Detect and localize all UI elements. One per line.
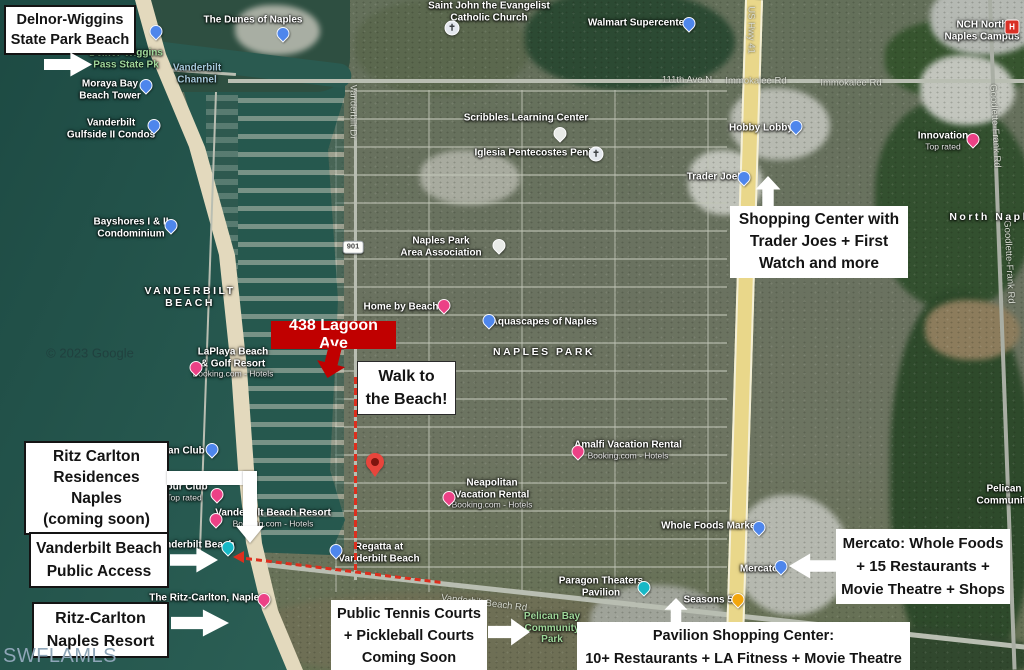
- callout-walk-to-beach: Walk to the Beach!: [357, 361, 456, 415]
- callout-line: Ritz-Carlton: [36, 607, 165, 630]
- callout-line: the Beach!: [360, 388, 453, 411]
- callout-delnor-wiggins: Delnor-Wiggins State Park Beach: [4, 5, 136, 55]
- map-label-goodlette-frank-rd: Goodlette-Frank Rd: [1000, 220, 1015, 304]
- callout-line: Trader Joes + First: [732, 231, 906, 253]
- callout-line: Coming Soon: [333, 647, 485, 669]
- map-label-saint-john-the-evangelist: Saint John the EvangelistCatholic Church: [428, 1, 550, 24]
- map-pin-blue-icon: [274, 24, 292, 42]
- map-label-vanderbilt-dr: Vanderbilt Dr: [347, 85, 358, 140]
- map-label-walmart-supercenter: Walmart Supercenter: [588, 17, 688, 29]
- map-label-home-by-beach: Home by Beach: [363, 301, 438, 313]
- callout-line: Shopping Center with: [732, 209, 906, 231]
- map-label-north-naples: North Naples: [949, 211, 1024, 223]
- callout-tennis-courts: Public Tennis Courts + Pickleball Courts…: [331, 600, 487, 670]
- callout-line: 10+ Restaurants + LA Fitness + Movie The…: [579, 648, 908, 670]
- map-label-iglesia-pentecostes-peniel: Iglesia Pentecostes Peniel: [474, 147, 599, 159]
- route-arrowhead-icon: [233, 551, 244, 563]
- map-label-aquascapes-of-naples: Aquascapes of Naples: [491, 316, 598, 328]
- listing-map-image: The Dunes of NaplesSaint John the Evange…: [0, 0, 1024, 670]
- map-label-vanderbilt: VANDERBILTBEACH: [144, 285, 235, 309]
- map-pin-pink-icon: [208, 485, 226, 503]
- callout-mercato: Mercato: Whole Foods + 15 Restaurants + …: [836, 529, 1010, 604]
- callout-438-lagoon-ave: 438 Lagoon Ave: [271, 321, 396, 349]
- callout-line: Residences Naples: [28, 467, 165, 509]
- callout-line: Walk to: [360, 365, 453, 388]
- map-label-pelican: PelicanCommunity: [977, 484, 1024, 507]
- map-pin-orange-icon: [729, 590, 747, 608]
- callout-line: Delnor-Wiggins: [8, 10, 132, 30]
- map-pin-white-icon: [551, 124, 569, 142]
- map-label-goodlette-frank-rd: Goodlette-Frank Rd: [986, 84, 1001, 168]
- map-pin-white-icon: [490, 236, 508, 254]
- map-pin-red-h-icon: H: [1005, 20, 1020, 35]
- map-pin-church-icon: ✝: [589, 147, 604, 162]
- map-pin-blue-icon: [147, 22, 165, 40]
- map-label-whole-foods-market: Whole Foods Market: [661, 520, 759, 532]
- ritz-residences-arrowhead-icon: [236, 526, 264, 543]
- map-label-vanderbilt: VanderbiltChannel: [173, 63, 221, 86]
- callout-line: Mercato: Whole Foods: [838, 532, 1008, 555]
- map-label-regatta-at: Regatta atVanderbilt Beach: [338, 542, 419, 565]
- map-label-moraya-bay: Moraya BayBeach Tower: [79, 79, 141, 102]
- map-label-vanderbilt-beach-resort: Vanderbilt Beach ResortBooking.com - Hot…: [215, 507, 331, 528]
- callout-line: + 15 Restaurants +: [838, 555, 1008, 578]
- mls-watermark: SWFLAMLS: [3, 645, 117, 668]
- callout-line: Vanderbilt Beach: [33, 537, 165, 560]
- map-label-bayshores-i-ii: Bayshores I & IICondominium: [93, 217, 168, 240]
- callout-line: Ritz Carlton: [28, 446, 165, 467]
- callout-line: + Pickleball Courts: [333, 625, 485, 647]
- map-label-mercato: Mercato: [740, 563, 778, 575]
- map-label-immokalee-rd: Immokalee Rd: [820, 79, 881, 90]
- map-label-the-dunes-of-naples: The Dunes of Naples: [204, 14, 303, 26]
- map-label-neapolitan: NeapolitanVacation RentalBooking.com - H…: [452, 478, 533, 511]
- callout-line: Watch and more: [732, 253, 906, 275]
- callout-line: State Park Beach: [8, 30, 132, 50]
- map-label-amalfi-vacation-rental: Amalfi Vacation RentalBooking.com - Hote…: [574, 439, 682, 460]
- callout-line: Pavilion Shopping Center:: [579, 625, 908, 648]
- google-watermark: © 2023 Google: [46, 347, 134, 362]
- map-label-naples-park: Naples ParkArea Association: [400, 236, 481, 259]
- property-pin-icon: [366, 453, 384, 471]
- map-label-paragon-theaters: Paragon TheatersPavilion: [559, 576, 643, 599]
- map-label-innovation: InnovationTop rated: [918, 130, 969, 151]
- map-pin-blue-icon: [203, 440, 221, 458]
- map-label-ian-club: ian Club: [165, 445, 204, 457]
- map-label-us-hwy-41: US Hwy 41: [745, 6, 756, 54]
- map-label-scribbles-learning-center: Scribbles Learning Center: [464, 112, 588, 124]
- ritz-residences-arrow-icon: [243, 471, 257, 528]
- map-label-hobby-lobby: Hobby Lobby: [729, 122, 793, 134]
- map-label-111th-ave-n: 111th Ave N: [662, 76, 712, 87]
- callout-pavilion: Pavilion Shopping Center: 10+ Restaurant…: [577, 622, 910, 670]
- callout-line: (coming soon): [28, 509, 165, 530]
- callout-line: Public Access: [33, 560, 165, 583]
- callout-line: Movie Theatre + Shops: [838, 578, 1008, 601]
- map-label-901: 901: [343, 241, 364, 254]
- map-pin-church-icon: ✝: [445, 21, 460, 36]
- map-label-laplaya-beach: LaPlaya Beach& Golf ResortBooking.com - …: [193, 347, 274, 380]
- callout-beach-access: Vanderbilt Beach Public Access: [29, 532, 169, 588]
- map-label-pelican-bay: Pelican BayCommunityPark: [524, 611, 580, 646]
- map-label-immokalee-rd: Immokalee Rd: [725, 77, 786, 88]
- map-label-vanderbilt: VanderbiltGulfside II Condos: [67, 118, 155, 141]
- map-label-naples-park: NAPLES PARK: [493, 346, 595, 358]
- callout-shopping-center: Shopping Center with Trader Joes + First…: [730, 206, 908, 278]
- callout-ritz-residences: Ritz Carlton Residences Naples (coming s…: [24, 441, 169, 535]
- callout-line: Public Tennis Courts: [333, 603, 485, 625]
